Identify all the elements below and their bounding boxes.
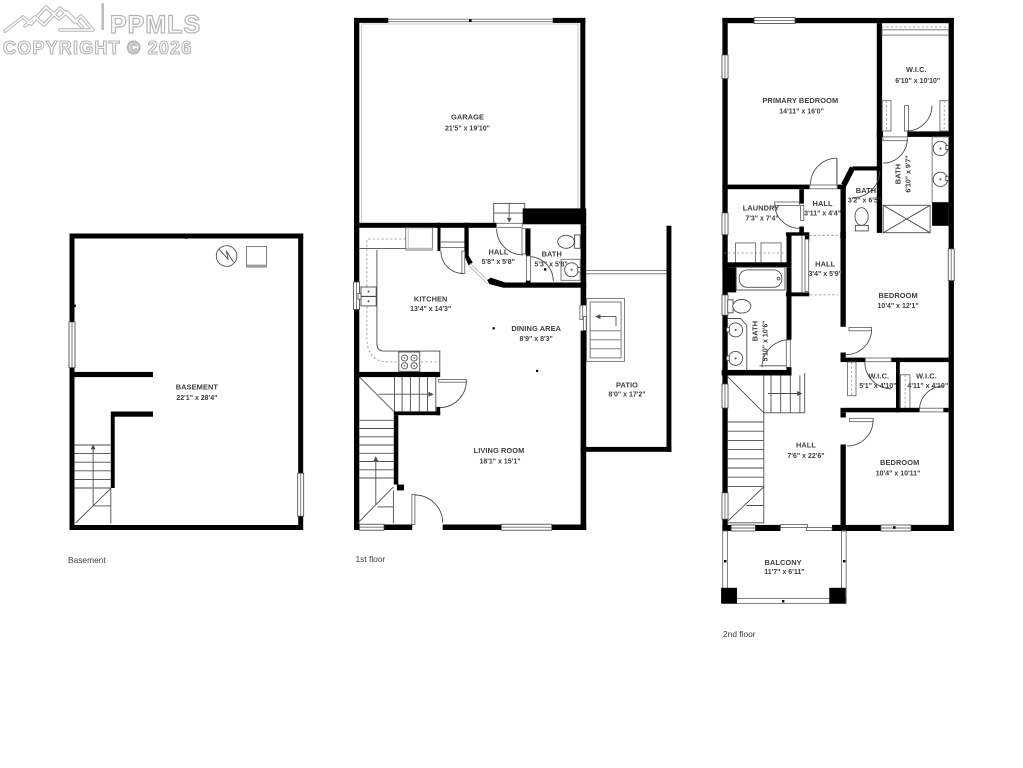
- svg-text:6'10" x 9'7": 6'10" x 9'7": [906, 155, 913, 192]
- svg-text:HALL: HALL: [488, 248, 508, 257]
- svg-text:GARAGE: GARAGE: [451, 113, 484, 122]
- svg-text:7'3" x 7'4": 7'3" x 7'4": [745, 215, 778, 222]
- svg-text:11'7" x 6'11": 11'7" x 6'11": [764, 569, 804, 576]
- svg-text:LIVING ROOM: LIVING ROOM: [474, 446, 525, 455]
- svg-text:BATH: BATH: [542, 249, 562, 258]
- svg-text:3'4" x 5'9": 3'4" x 5'9": [809, 271, 842, 278]
- svg-text:21'5" x 19'10": 21'5" x 19'10": [445, 125, 490, 132]
- svg-text:3'11" x 4'4": 3'11" x 4'4": [804, 210, 841, 217]
- svg-text:5'3" x 5'8": 5'3" x 5'8": [534, 261, 567, 268]
- svg-text:BATH: BATH: [751, 321, 760, 341]
- svg-text:10'4" x 10'11": 10'4" x 10'11": [876, 470, 921, 477]
- svg-text:BATH: BATH: [856, 186, 876, 195]
- svg-text:PATIO: PATIO: [616, 381, 638, 390]
- svg-text:W.I.C.: W.I.C.: [868, 372, 889, 381]
- svg-text:8'0" x 17'2": 8'0" x 17'2": [608, 392, 645, 399]
- svg-text:2nd floor: 2nd floor: [723, 629, 756, 639]
- svg-text:PPMLS: PPMLS: [110, 11, 201, 39]
- svg-text:3'2" x 6'5": 3'2" x 6'5": [848, 197, 881, 204]
- svg-text:KITCHEN: KITCHEN: [414, 294, 448, 303]
- svg-text:7'6" x 22'6": 7'6" x 22'6": [787, 453, 824, 460]
- svg-text:14'11" x 16'0": 14'11" x 16'0": [779, 109, 824, 116]
- svg-text:HALL: HALL: [813, 199, 833, 208]
- svg-text:LAUNDRY: LAUNDRY: [743, 204, 780, 213]
- svg-text:PRIMARY BEDROOM: PRIMARY BEDROOM: [762, 96, 838, 105]
- svg-text:BALCONY: BALCONY: [764, 558, 801, 567]
- svg-text:W.I.C.: W.I.C.: [906, 65, 927, 74]
- svg-text:5'1" x 4'10": 5'1" x 4'10": [859, 383, 896, 390]
- svg-text:13'4" x 14'3": 13'4" x 14'3": [410, 306, 451, 313]
- svg-text:DINING AREA: DINING AREA: [511, 324, 561, 333]
- svg-text:COPYRIGHT © 2026: COPYRIGHT © 2026: [3, 38, 193, 58]
- svg-text:5'8" x 5'8": 5'8" x 5'8": [482, 259, 515, 266]
- svg-text:5'10" x 10'6": 5'10" x 10'6": [763, 320, 770, 361]
- svg-text:1st floor: 1st floor: [356, 554, 386, 564]
- svg-text:HALL: HALL: [815, 259, 835, 268]
- svg-text:6'10" x 10'10": 6'10" x 10'10": [895, 78, 940, 85]
- svg-text:BATH: BATH: [894, 164, 903, 184]
- svg-text:HALL: HALL: [796, 441, 816, 450]
- svg-text:BEDROOM: BEDROOM: [880, 458, 919, 467]
- svg-text:22'1" x 28'4": 22'1" x 28'4": [176, 395, 217, 402]
- svg-text:Basement: Basement: [68, 555, 106, 565]
- svg-text:18'1" x 15'1": 18'1" x 15'1": [479, 459, 520, 466]
- svg-text:BEDROOM: BEDROOM: [878, 291, 917, 300]
- svg-text:8'9" x 8'3": 8'9" x 8'3": [520, 336, 553, 343]
- svg-text:W.I.C.: W.I.C.: [916, 372, 937, 381]
- svg-text:BASEMENT: BASEMENT: [176, 383, 219, 392]
- svg-text:10'4" x 12'1": 10'4" x 12'1": [878, 303, 919, 310]
